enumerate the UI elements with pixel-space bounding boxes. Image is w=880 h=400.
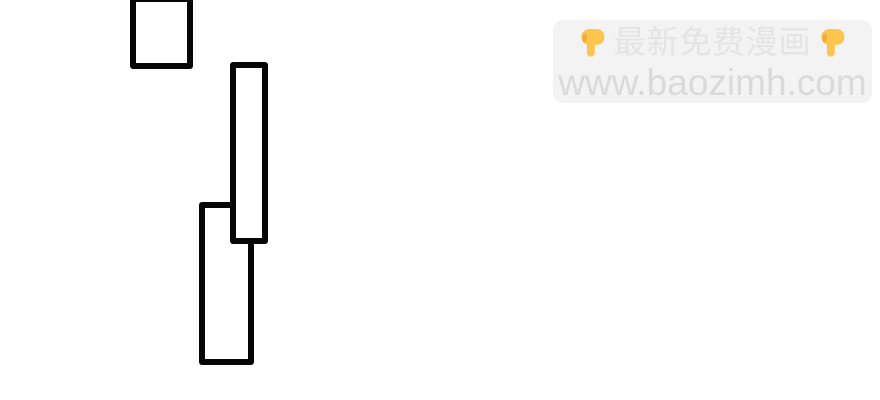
watermark-tagline-text: 最新免费漫画 [613,21,811,63]
comic-panel-middle [230,62,268,244]
comic-panel-top [130,0,193,69]
watermark-tagline: 最新免费漫画 [576,21,848,63]
pointing-down-icon [816,24,849,60]
watermark-badge: 最新免费漫画 www.baozimh.com [553,20,872,103]
watermark-url: www.baozimh.com [558,63,866,102]
comic-page: 最新免费漫画 www.baozimh.com [0,0,880,400]
pointing-down-icon [576,24,609,60]
